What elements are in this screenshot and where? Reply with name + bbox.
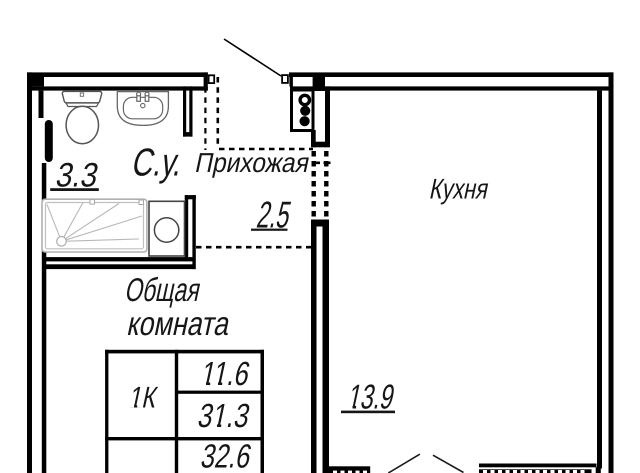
svg-text:С.у.: С.у. xyxy=(129,141,187,185)
svg-text:31.3: 31.3 xyxy=(195,397,253,435)
svg-text:13.9: 13.9 xyxy=(345,378,398,417)
svg-text:11.6: 11.6 xyxy=(198,355,253,393)
svg-text:комната: комната xyxy=(124,305,234,343)
svg-text:Кухня: Кухня xyxy=(427,174,492,206)
svg-text:32.6: 32.6 xyxy=(198,438,255,473)
svg-text:Общая: Общая xyxy=(122,272,204,309)
svg-text:Прихожая: Прихожая xyxy=(193,147,313,178)
